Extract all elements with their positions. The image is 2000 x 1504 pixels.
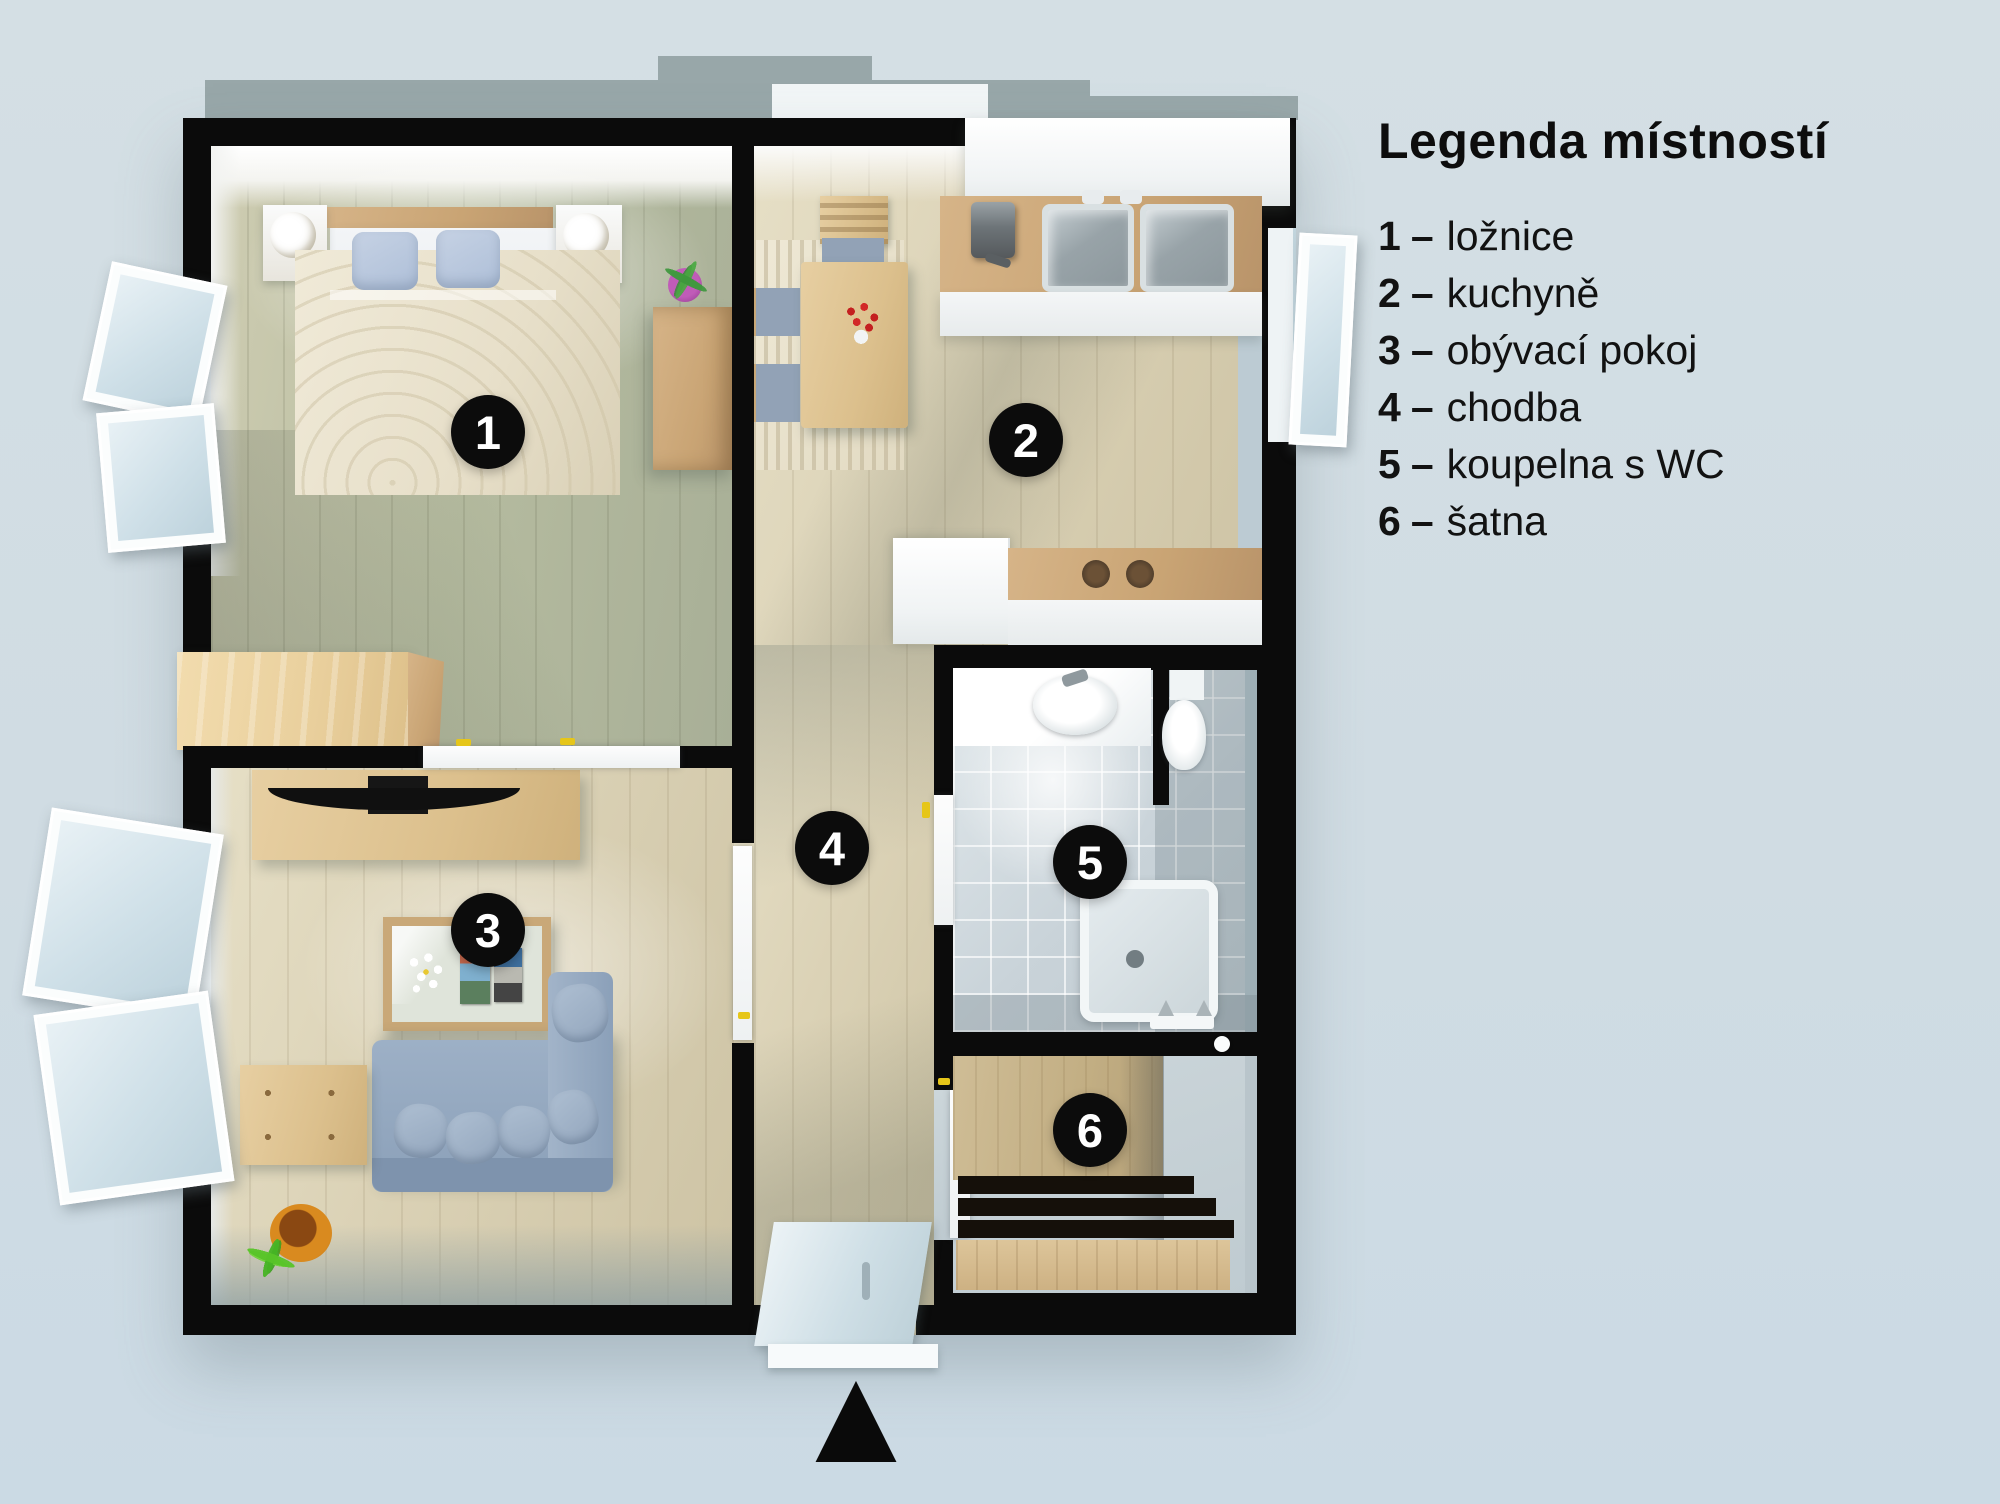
backdrop-balcony: [772, 84, 988, 120]
room-badge-bathroom: 5: [1053, 825, 1127, 899]
room-badge-hallway: 4: [795, 811, 869, 885]
floorplan-scene: ▲ 1 2 3 4 5 6 Legenda místností 1 – ložn…: [0, 0, 2000, 1504]
legend-item: 6 – šatna: [1378, 493, 1968, 550]
fridge: [893, 538, 1010, 644]
dining-chair: [820, 196, 888, 244]
legend-item-label: šatna: [1447, 498, 1547, 545]
legend-item-number: 6: [1378, 498, 1401, 545]
legend-item: 4 – chodba: [1378, 379, 1968, 436]
bed-headboard: [322, 207, 553, 228]
wall-bedroom-living: [183, 746, 423, 768]
door-handle: [738, 1012, 750, 1019]
room-badge-bedroom: 1: [451, 395, 525, 469]
window-glass: [96, 274, 215, 411]
door-handle: [922, 802, 930, 818]
dining-chair-seat: [756, 364, 800, 422]
wall-bathroom-top: [934, 645, 1262, 670]
legend-item-dash: –: [1411, 213, 1434, 260]
room-badge-living: 3: [451, 893, 525, 967]
clothes-rack: [958, 1198, 1216, 1216]
wall-living-hallway: [732, 1043, 754, 1305]
shampoo-bottle: [1158, 1000, 1174, 1016]
legend-item-label: chodba: [1447, 384, 1582, 431]
door-handle: [456, 739, 471, 746]
legend-item-label: kuchyně: [1447, 270, 1600, 317]
legend-item-label: koupelna s WC: [1447, 441, 1725, 488]
bedroom-desk: [177, 652, 408, 750]
hob-burner: [1126, 560, 1154, 588]
daisy-bouquet: [402, 948, 450, 996]
door-bedroom-living: [423, 746, 680, 768]
entrance-arrow-icon: ▲: [796, 1360, 916, 1466]
legend-item-number: 3: [1378, 327, 1401, 374]
shampoo-bottle: [1196, 1000, 1212, 1016]
legend-item-dash: –: [1411, 384, 1434, 431]
wall-closet-left: [934, 1240, 953, 1305]
window-living: [22, 808, 224, 1023]
clothes-rack: [958, 1220, 1234, 1238]
legend-title: Legenda místností: [1378, 112, 1968, 170]
bath-shelf: [1150, 1016, 1214, 1029]
legend-item-dash: –: [1411, 327, 1434, 374]
wall-face: [1245, 1056, 1257, 1293]
kitchen-sink: [1042, 204, 1134, 292]
bed-sheet-fold: [330, 290, 556, 300]
entrance-door-handle: [862, 1262, 870, 1300]
dining-chair-seat: [822, 238, 884, 264]
window-glass: [108, 415, 214, 541]
window-living: [33, 991, 234, 1206]
wc-tank: [1170, 670, 1204, 700]
window-glass: [46, 1003, 222, 1193]
legend-item: 1 – ložnice: [1378, 208, 1968, 265]
wall-face: [754, 146, 969, 202]
door-living-hallway: [733, 846, 752, 1040]
window-glass: [1300, 244, 1346, 436]
wall-face: [1245, 670, 1257, 1032]
legend-item-label: obývací pokoj: [1447, 327, 1698, 374]
bed-pillow: [352, 232, 418, 290]
legend-item-label: ložnice: [1447, 213, 1575, 260]
legend-item-number: 1: [1378, 213, 1401, 260]
legend-item-dash: –: [1411, 270, 1434, 317]
wall-bedroom-living: [680, 746, 732, 768]
door-handle: [938, 1078, 950, 1085]
legend-item-number: 2: [1378, 270, 1401, 317]
closet-front-panel: [956, 1240, 1230, 1290]
legend-item: 5 – koupelna s WC: [1378, 436, 1968, 493]
wall-bedroom-kitchen: [732, 118, 754, 843]
dining-chair-seat: [756, 288, 800, 336]
shower-drain: [1126, 950, 1144, 968]
window-kitchen: [1288, 233, 1357, 448]
sofa-backrest: [372, 1158, 613, 1192]
door-handle: [560, 738, 575, 745]
room-badge-kitchen: 2: [989, 403, 1063, 477]
legend-item-number: 5: [1378, 441, 1401, 488]
window-glass: [35, 820, 211, 1010]
backdrop-shadow: [1090, 96, 1298, 120]
bed-pillow: [436, 230, 500, 288]
legend-item: 2 – kuchyně: [1378, 265, 1968, 322]
legend: Legenda místností 1 – ložnice 2 – kuchyn…: [1378, 112, 1968, 550]
wall-bathroom-left: [934, 925, 953, 1090]
backdrop-shadow: [658, 56, 872, 82]
legend-item-dash: –: [1411, 498, 1434, 545]
bedroom-desk-return: [408, 652, 444, 750]
wall-bathroom-closet: [934, 1032, 1262, 1056]
legend-item-number: 4: [1378, 384, 1401, 431]
legend-item-dash: –: [1411, 441, 1434, 488]
wall-face: [211, 146, 732, 208]
kitchen-faucet: [1120, 190, 1142, 204]
window-bedroom: [96, 403, 226, 553]
hob-burner: [1082, 560, 1110, 588]
clothes-rack: [958, 1176, 1194, 1194]
room-hallway-floor: [754, 645, 934, 1305]
kitchen-base-cabinets: [940, 292, 1262, 336]
wc-toilet: [1162, 700, 1206, 770]
side-bench: [240, 1065, 367, 1165]
legend-item: 3 – obývací pokoj: [1378, 322, 1968, 379]
flower-vase: [840, 300, 884, 346]
kitchen-sink: [1140, 204, 1234, 292]
coffee-machine: [971, 202, 1015, 258]
hob-base-cabinet: [1008, 600, 1262, 645]
room-badge-closet: 6: [1053, 1093, 1127, 1167]
kitchen-faucet: [1082, 190, 1104, 204]
door-bathroom: [934, 795, 953, 925]
entrance-door: [754, 1222, 932, 1346]
toilet-brush: [1214, 1036, 1230, 1052]
